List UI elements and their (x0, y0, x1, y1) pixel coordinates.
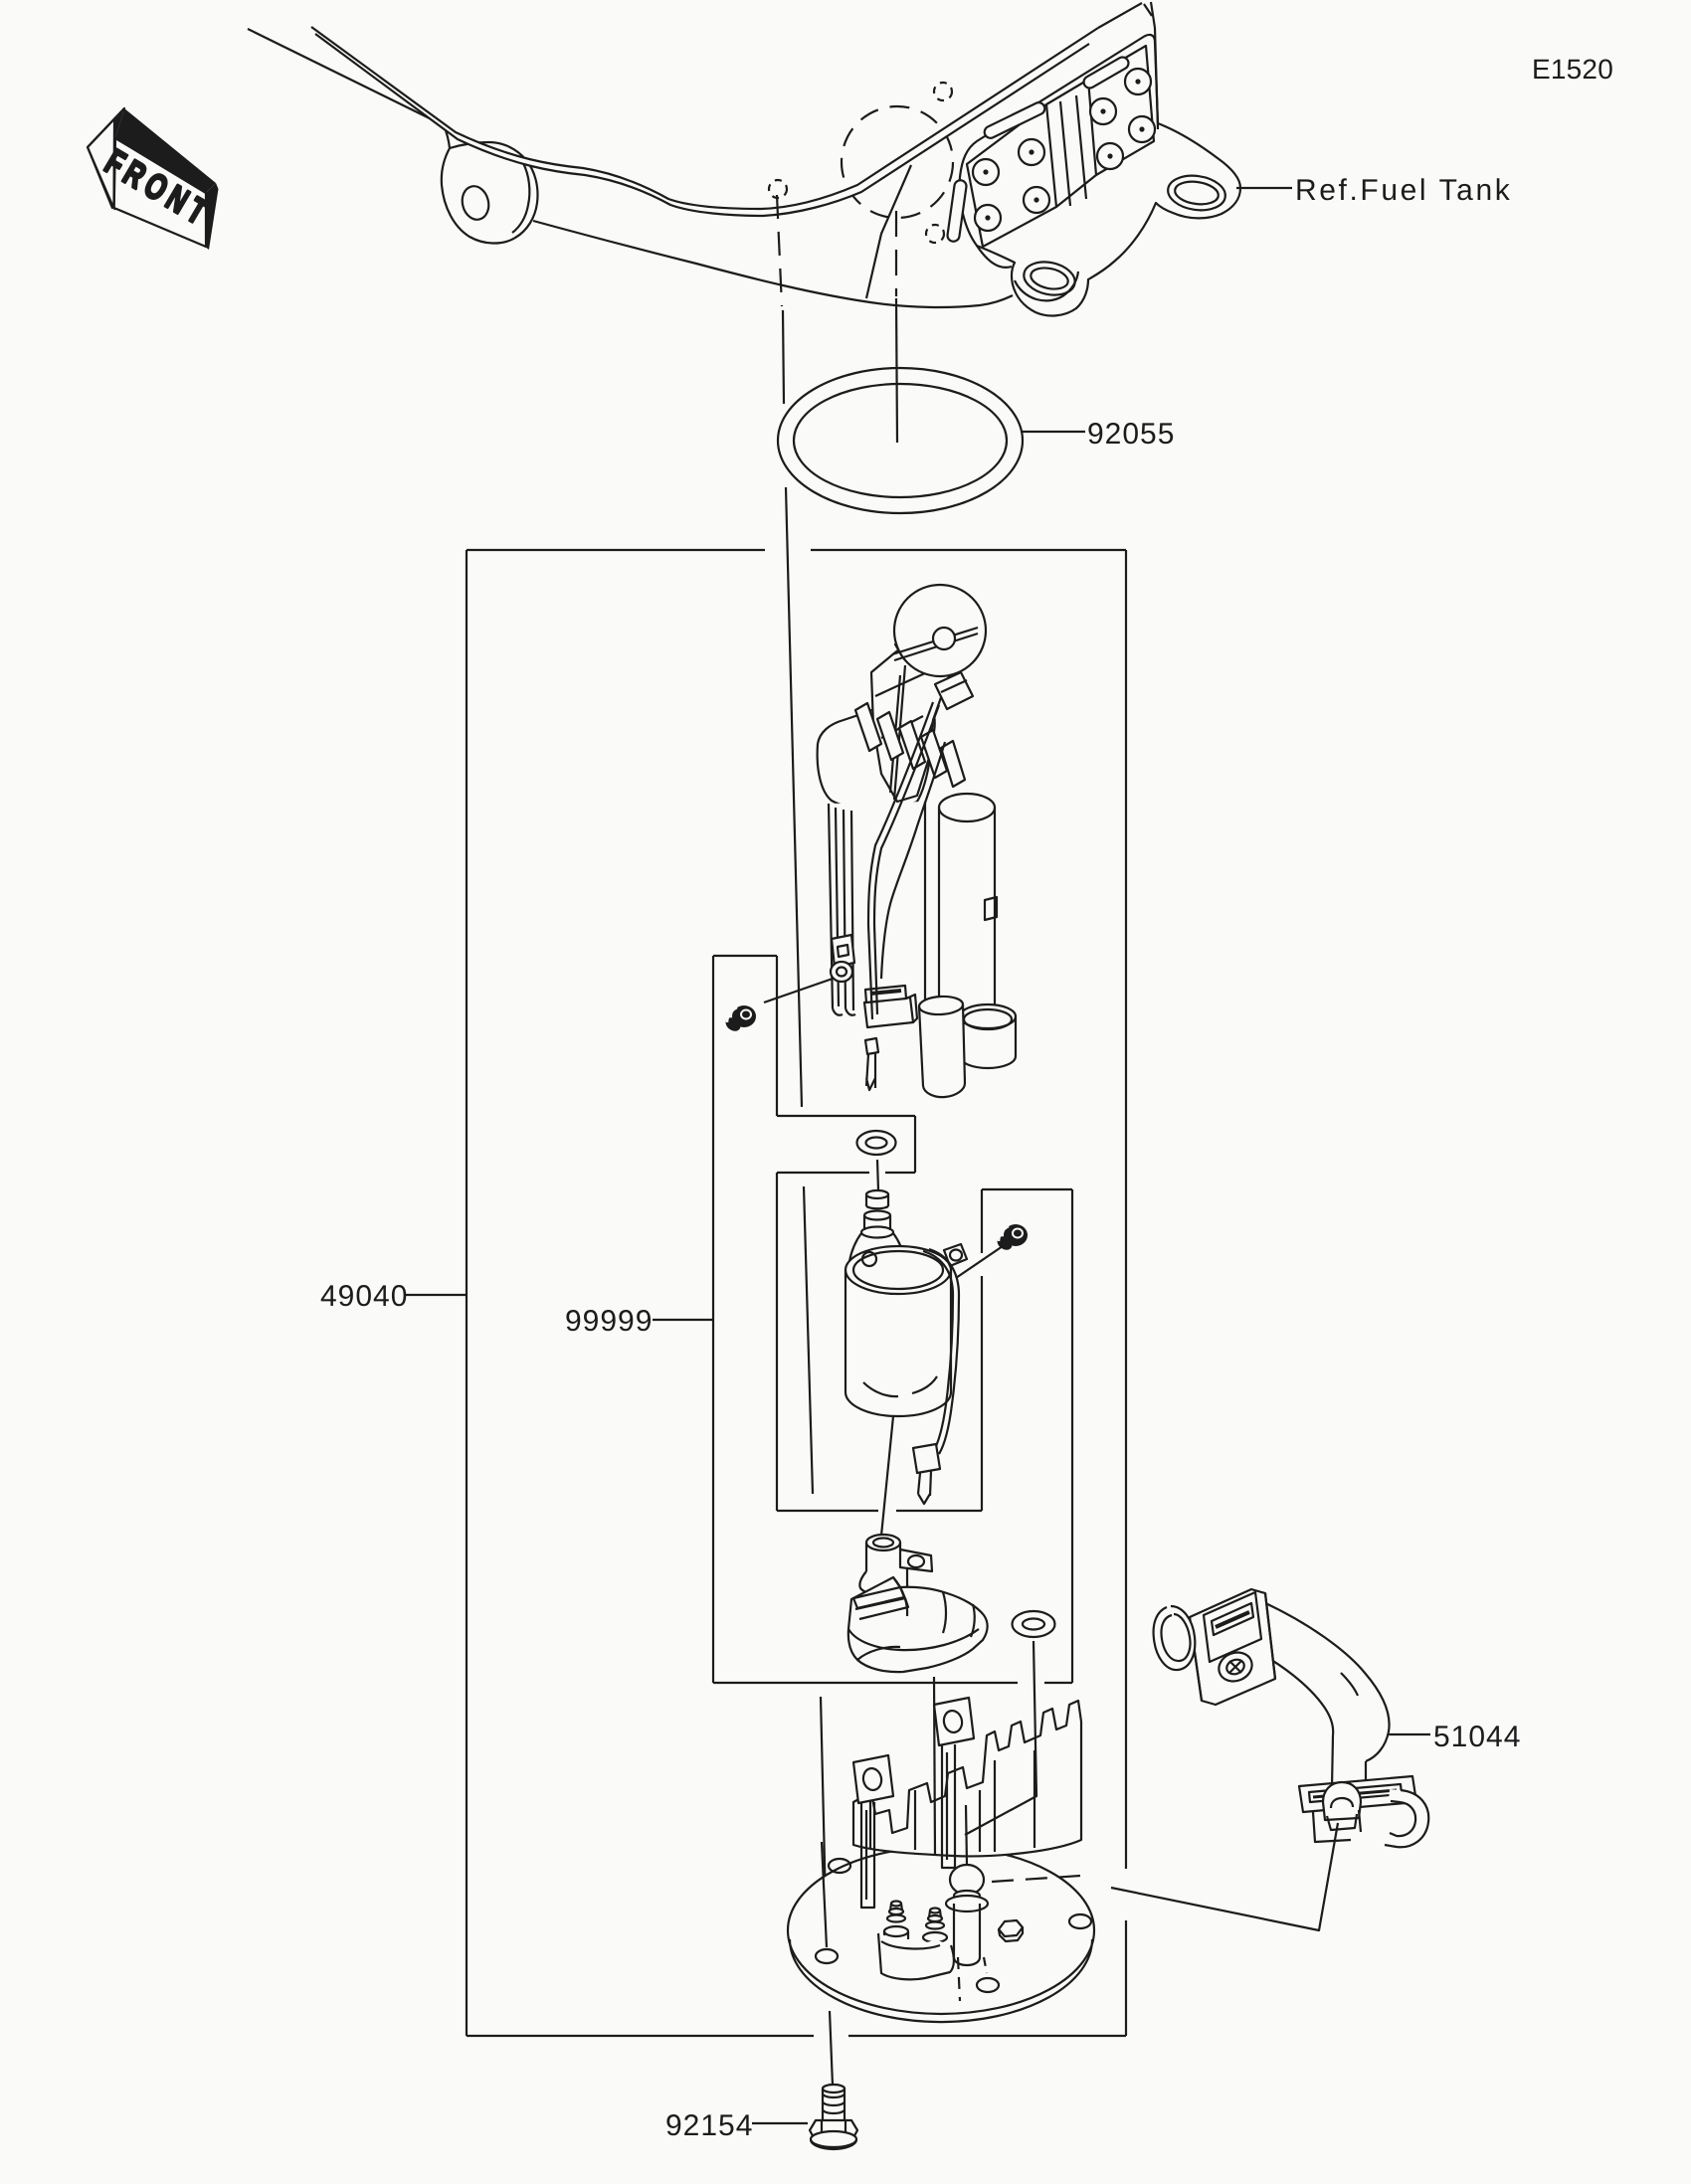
svg-text:92055: 92055 (1087, 418, 1175, 451)
svg-text:92154: 92154 (665, 2109, 753, 2142)
svg-text:99999: 99999 (565, 1305, 653, 1338)
svg-text:49040: 49040 (320, 1280, 408, 1313)
svg-text:Ref.Fuel Tank: Ref.Fuel Tank (1295, 174, 1512, 207)
svg-text:51044: 51044 (1433, 1721, 1521, 1753)
svg-text:E1520: E1520 (1532, 54, 1613, 85)
